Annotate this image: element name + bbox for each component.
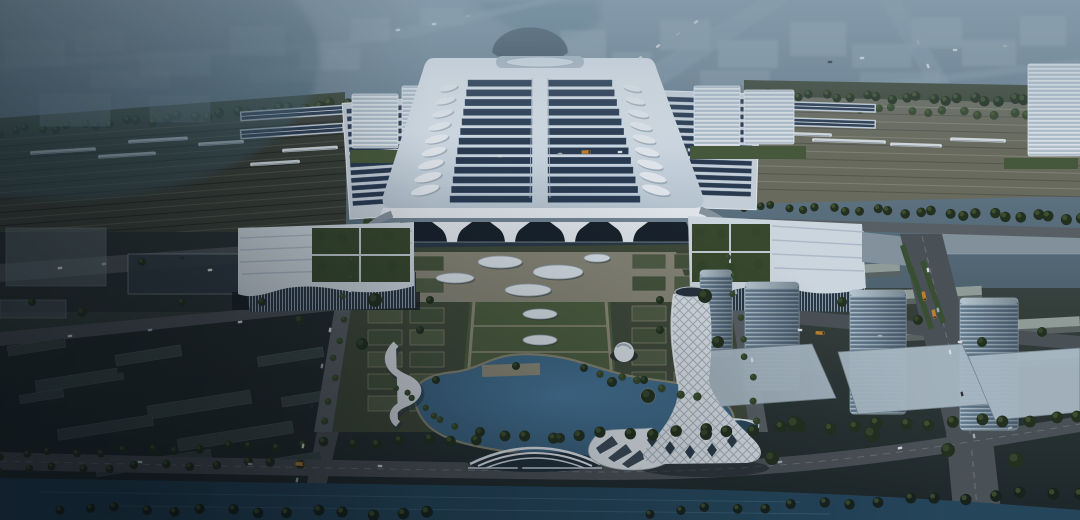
aerial-rendering-canvas [0, 0, 1080, 520]
atmosphere [0, 0, 1080, 520]
blue-tint [0, 0, 1080, 520]
